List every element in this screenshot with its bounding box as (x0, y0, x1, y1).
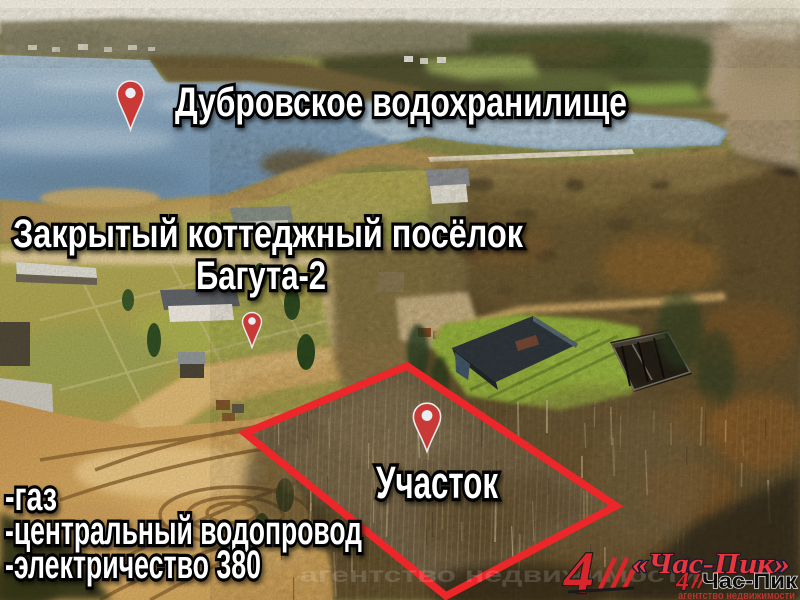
svg-text:Закрытый коттеджный посёлок: Закрытый коттеджный посёлок (13, 212, 524, 256)
svg-text:Багута-2: Багута-2 (196, 254, 326, 298)
svg-text:Участок: Участок (376, 457, 498, 508)
svg-text:Дубровское водохранилище: Дубровское водохранилище (175, 79, 627, 125)
svg-text:-электричество 380: -электричество 380 (5, 543, 261, 587)
svg-text:агентство недвижимости: агентство недвижимости (678, 590, 795, 600)
